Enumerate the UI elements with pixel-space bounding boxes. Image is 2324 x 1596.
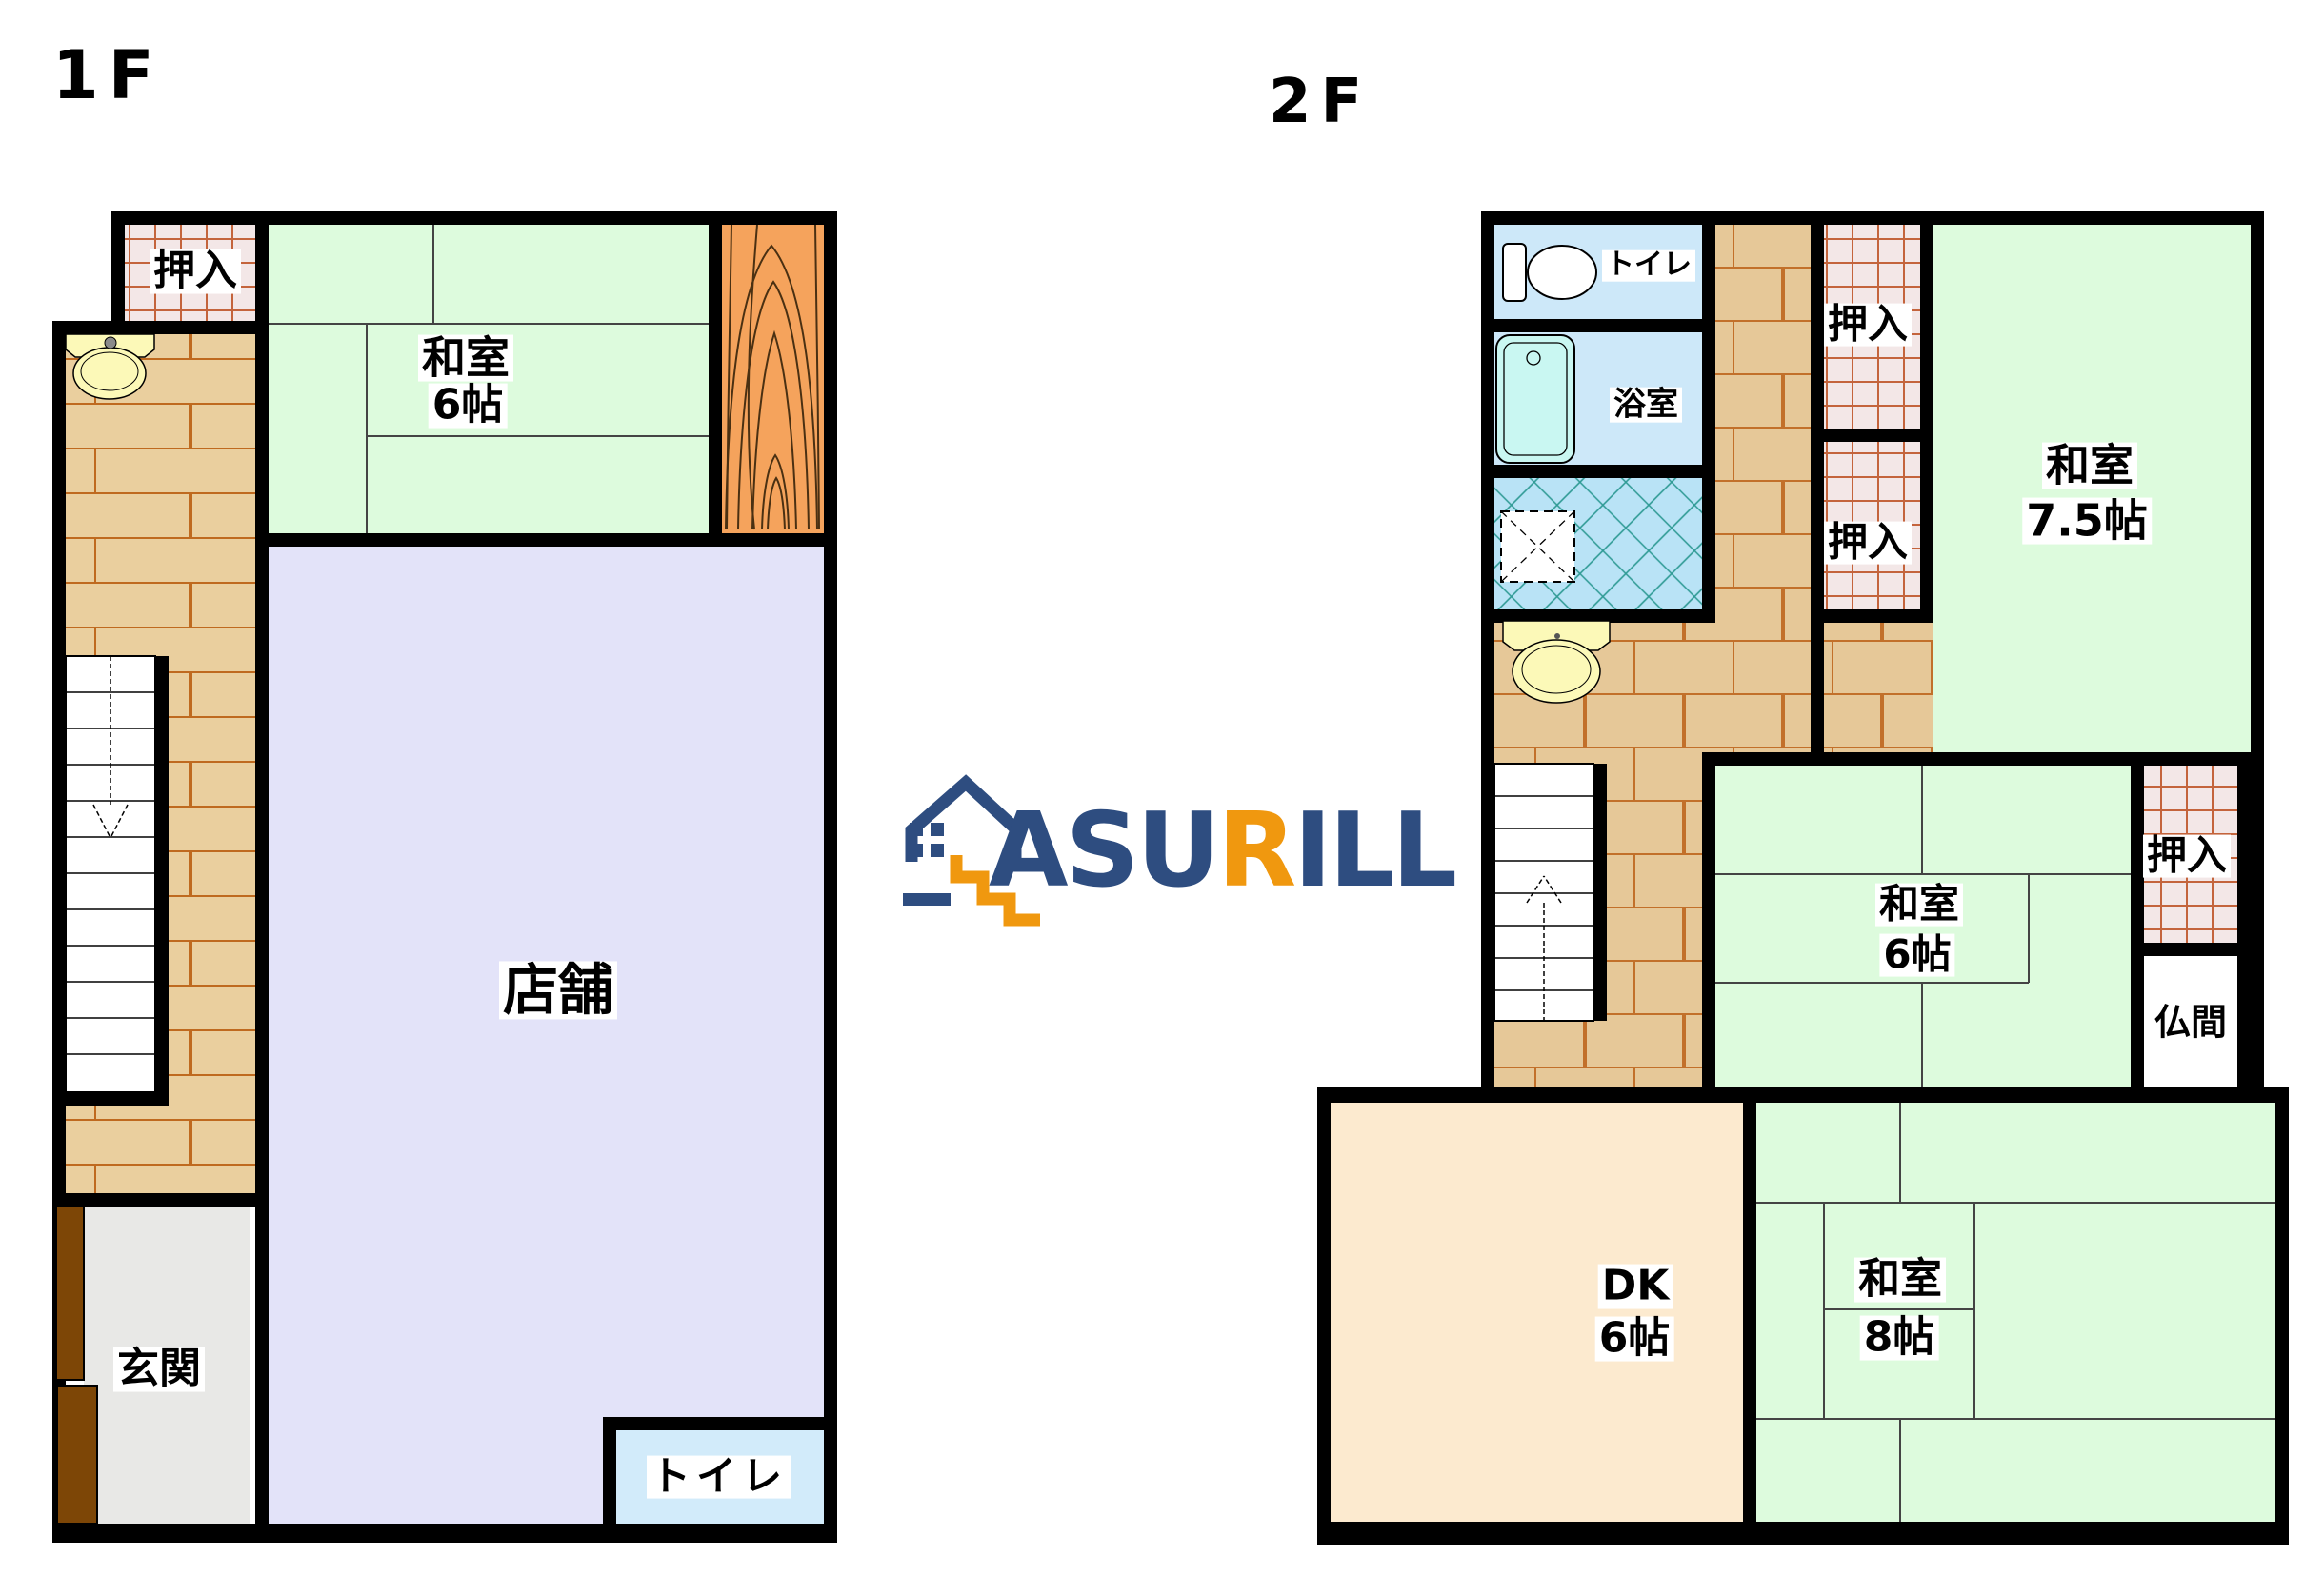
label-oshiire1-2f: 押入 xyxy=(1824,304,1912,347)
label-bath-2f: 浴室 xyxy=(1610,388,1682,423)
washer-pan-icon-2f xyxy=(1501,511,1574,582)
label-washitsu-size-1f: 6帖 xyxy=(429,384,508,429)
corridor-east-2f xyxy=(1824,623,1933,752)
label-toilet-1f: トイレ xyxy=(647,1456,791,1499)
room-tenpo-1f xyxy=(269,547,824,1524)
logo-wordmark: ASURILL xyxy=(989,802,1454,901)
label-butsuma-2f: 仏間 xyxy=(2151,1004,2231,1043)
label-washitsu8-size-2f: 8帖 xyxy=(1860,1316,1939,1361)
label-washitsu6-name-2f: 和室 xyxy=(1875,884,1963,927)
label-dk-size-2f: 6帖 xyxy=(1595,1317,1674,1362)
label-washitsu75-name-2f: 和室 xyxy=(2042,443,2137,489)
bathtub-icon-2f xyxy=(1496,335,1574,463)
room-dk-2f xyxy=(1331,1103,1743,1522)
logo-part-ill: ILL xyxy=(1293,791,1454,910)
label-dk-name-2f: DK xyxy=(1598,1265,1673,1309)
label-genkan-1f: 玄関 xyxy=(113,1347,205,1392)
logo-part-asu: ASU xyxy=(989,791,1217,910)
hallway-lower-2f xyxy=(1494,1021,1715,1087)
label-oshiire3-2f: 押入 xyxy=(2143,835,2231,878)
label-washitsu75-size-2f: 7.5帖 xyxy=(2022,498,2152,545)
label-washitsu8-name-2f: 和室 xyxy=(1854,1258,1946,1303)
label-toilet-2f: トイレ xyxy=(1602,250,1695,282)
floor2-plan xyxy=(1317,211,2289,1545)
label-oshiire-1f: 押入 xyxy=(150,249,241,294)
toilet-icon-2f xyxy=(1503,244,1596,301)
logo-part-r: R xyxy=(1217,791,1293,910)
corridor-2f xyxy=(1715,225,1811,752)
hallway-lower-1f xyxy=(66,1106,255,1193)
floor2-title: 2F xyxy=(1269,67,1372,137)
hallway-side-1f xyxy=(169,656,255,1106)
label-washitsu6-size-2f: 6帖 xyxy=(1879,934,1954,977)
hallway-stairs-side-2f xyxy=(1607,764,1715,1021)
label-washitsu-name-1f: 和室 xyxy=(418,335,513,382)
label-oshiire2-2f: 押入 xyxy=(1824,522,1912,565)
floorplan-page: 1F 2F 押入 和室 6帖 店舗 玄関 トイレ トイレ 浴室 押入 押入 和室… xyxy=(0,0,2324,1596)
room-washitsu8-2f xyxy=(1756,1103,2275,1522)
label-tenpo-1f: 店舗 xyxy=(499,961,617,1019)
floor1-title: 1F xyxy=(52,36,164,114)
